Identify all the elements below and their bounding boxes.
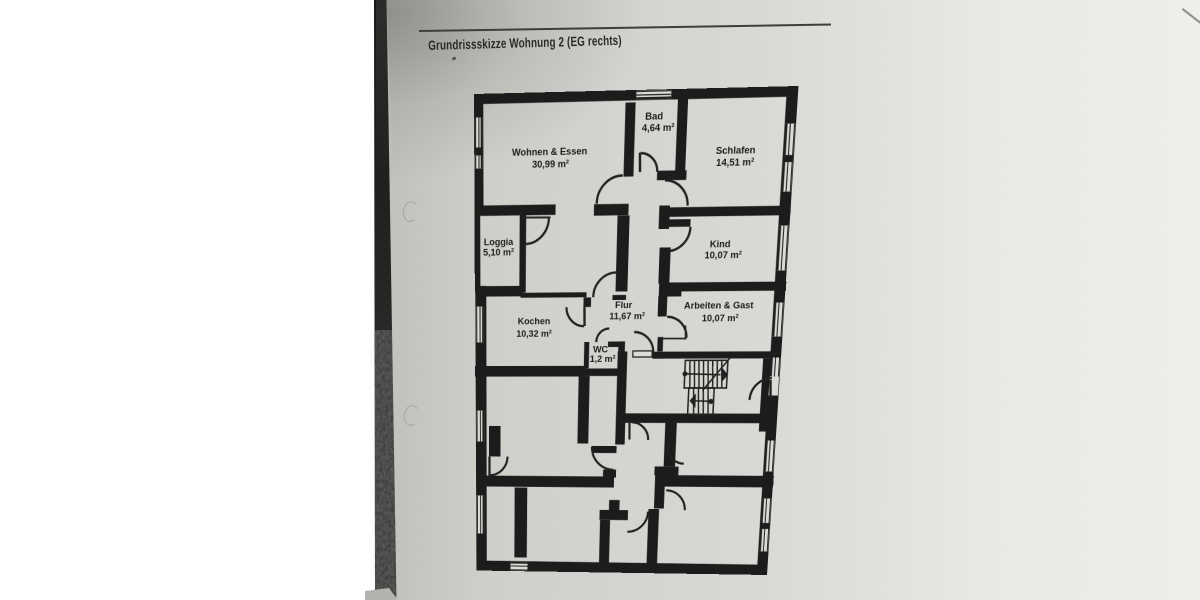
svg-text:4,64 m²: 4,64 m²: [641, 122, 675, 134]
svg-text:Kind: Kind: [709, 239, 730, 250]
svg-text:1,2 m²: 1,2 m²: [589, 354, 616, 365]
svg-text:Loggia: Loggia: [483, 236, 513, 247]
svg-text:Schlafen: Schlafen: [715, 144, 755, 156]
svg-text:10,07 m²: 10,07 m²: [704, 250, 742, 262]
svg-text:Flur: Flur: [614, 300, 632, 311]
svg-text:11,67 m²: 11,67 m²: [609, 311, 646, 322]
svg-text:Arbeiten & Gast: Arbeiten & Gast: [683, 300, 754, 311]
svg-text:Kochen: Kochen: [517, 316, 550, 327]
svg-text:10,07 m²: 10,07 m²: [701, 313, 739, 324]
svg-text:14,51 m²: 14,51 m²: [715, 156, 754, 168]
svg-text:Wohnen & Essen: Wohnen & Essen: [511, 145, 586, 158]
svg-text:10,32 m²: 10,32 m²: [516, 328, 552, 339]
svg-text:5,10 m²: 5,10 m²: [483, 247, 515, 258]
svg-text:30,99 m²: 30,99 m²: [532, 158, 570, 170]
svg-text:Bad: Bad: [644, 110, 662, 122]
